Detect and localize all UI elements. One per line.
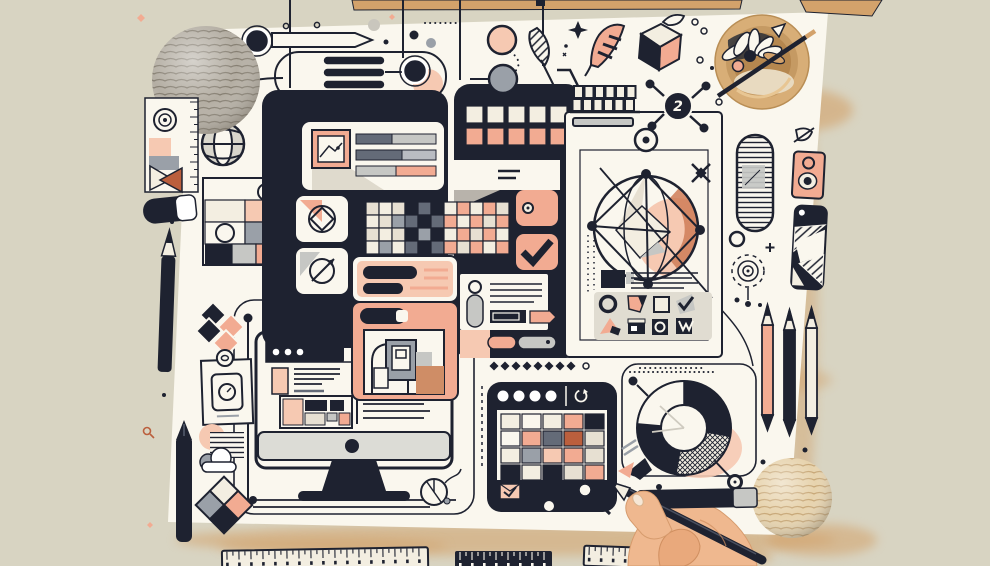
monitor-base xyxy=(298,491,410,501)
swatch-cell xyxy=(457,228,470,241)
swatch-cell xyxy=(392,202,405,215)
dark-node xyxy=(403,59,427,83)
frame-dot xyxy=(544,501,554,511)
compass-tile xyxy=(296,248,348,294)
pencil-left xyxy=(157,230,176,372)
swatch-cell xyxy=(431,215,444,228)
grey-dot xyxy=(368,19,380,31)
clipboard-tag xyxy=(201,349,254,425)
monitor-logo-dot xyxy=(345,439,359,453)
swatch-cell xyxy=(418,215,431,228)
swatch-cell xyxy=(483,241,496,254)
swatch-cell xyxy=(585,431,604,446)
swatch-cell xyxy=(501,414,520,429)
thumbnail-block xyxy=(272,368,288,394)
pencil-trio xyxy=(762,305,817,435)
swatch-cell xyxy=(457,241,470,254)
image-placeholder-icon xyxy=(312,130,350,168)
cart-basket-grid xyxy=(573,86,636,111)
swatch-cell xyxy=(543,414,562,429)
dark-pattern-card xyxy=(790,204,828,291)
mini-ruler-card xyxy=(145,98,198,192)
swatch-cell xyxy=(444,228,457,241)
swatch-cell xyxy=(543,465,562,480)
window-dot-icon xyxy=(273,349,280,356)
swatch-cell xyxy=(457,202,470,215)
swatch-cell xyxy=(418,228,431,241)
swatch-strip-grid xyxy=(366,202,509,254)
window-dot-icon xyxy=(285,349,292,356)
swatch-cell xyxy=(487,128,504,145)
pill-button xyxy=(518,336,556,349)
swatch-cell xyxy=(585,448,604,463)
peach-ring-circle xyxy=(488,26,516,54)
swatch-cell xyxy=(466,106,483,123)
pencil-white xyxy=(806,308,817,433)
design-tool-tile xyxy=(296,196,348,242)
swatch-cell xyxy=(585,465,604,480)
swatch-cell xyxy=(483,215,496,228)
swatch-cell xyxy=(522,414,541,429)
swatch-cell xyxy=(392,228,405,241)
swatch-cell xyxy=(470,202,483,215)
input-field xyxy=(490,310,526,323)
swatch-cell xyxy=(529,106,546,123)
monitor-stand xyxy=(322,460,386,491)
eraser xyxy=(142,194,197,224)
profile-card xyxy=(460,274,556,330)
swatch-cell xyxy=(418,202,431,215)
swatch-cell xyxy=(564,431,583,446)
pencil-peach xyxy=(762,305,773,430)
swatch-cell xyxy=(457,215,470,228)
swatch-cell xyxy=(405,241,418,254)
arch-document-card xyxy=(364,330,444,394)
swatch-cell xyxy=(543,448,562,463)
window-dot-icon xyxy=(514,391,525,402)
sketch-card xyxy=(565,112,722,368)
swatch-cell xyxy=(470,228,483,241)
swatch-cell xyxy=(418,241,431,254)
swatch-cell xyxy=(543,431,562,446)
pen-left xyxy=(176,420,192,542)
window-dot-icon xyxy=(530,391,541,402)
swatch-cell xyxy=(522,431,541,446)
ruler-white-long xyxy=(222,547,428,566)
peach-subpanel xyxy=(352,256,458,400)
pencil-dark xyxy=(784,310,795,435)
swatch-cell xyxy=(444,241,457,254)
ruler-dark xyxy=(455,551,552,566)
hatched-capsule xyxy=(737,135,773,231)
illustration-canvas: 2 xyxy=(0,0,990,566)
swatch-cell xyxy=(431,228,444,241)
swatch-cell xyxy=(496,215,509,228)
swatch-cell xyxy=(405,228,418,241)
swatch-cell xyxy=(496,228,509,241)
person-icon xyxy=(469,281,481,293)
menu-pill xyxy=(363,266,417,279)
swatch-cell xyxy=(470,215,483,228)
swatch-cell xyxy=(483,228,496,241)
swatch-cell xyxy=(444,202,457,215)
swatch-cell xyxy=(564,465,583,480)
swatch-cell xyxy=(444,215,457,228)
swatch-cell xyxy=(585,414,604,429)
peach-tag xyxy=(792,151,825,199)
swatch-cell xyxy=(379,228,392,241)
lens-icon xyxy=(652,319,668,335)
swatch-cell xyxy=(501,465,520,480)
illustration-stage: 2 xyxy=(0,0,990,566)
swatch-cell xyxy=(564,414,583,429)
swatch-cell xyxy=(496,241,509,254)
tiny-magnifier-icon xyxy=(144,428,155,439)
swatch-cell xyxy=(508,128,525,145)
swatch-cell xyxy=(522,465,541,480)
grey-ring-circle xyxy=(489,65,517,93)
menu-pill xyxy=(363,283,403,294)
swatch-cell xyxy=(405,215,418,228)
swatch-cell xyxy=(496,202,509,215)
pencil-button xyxy=(530,311,556,323)
swatch-cell xyxy=(366,215,379,228)
swatch-cell xyxy=(431,241,444,254)
swatch-cell xyxy=(470,241,483,254)
window-dot-icon xyxy=(498,391,509,402)
swatch-cell xyxy=(466,128,483,145)
swatch-cell xyxy=(366,228,379,241)
swatch-cell xyxy=(405,202,418,215)
swatch-cell xyxy=(564,448,583,463)
donut-chart xyxy=(637,381,731,475)
swatch-cell xyxy=(366,202,379,215)
pill-button xyxy=(488,336,516,349)
yarn-ball-beige xyxy=(752,458,832,538)
swatch-cell xyxy=(379,202,392,215)
swatch-cell xyxy=(379,215,392,228)
swatch-cell xyxy=(487,106,504,123)
window-dot-icon xyxy=(546,391,557,402)
swatch-cell xyxy=(501,448,520,463)
swatch-cell xyxy=(483,202,496,215)
square-icon xyxy=(654,297,669,312)
wireframe-mosaic xyxy=(280,396,352,428)
white-band xyxy=(454,160,560,190)
swatch-cell xyxy=(522,448,541,463)
swatch-cell xyxy=(379,241,392,254)
color-palette-panel xyxy=(487,361,617,514)
hub-count-label: 2 xyxy=(673,99,683,115)
progress-bars xyxy=(356,134,436,176)
swatch-cell xyxy=(529,128,546,145)
envelope-icon xyxy=(500,484,520,499)
swatch-cell xyxy=(431,202,444,215)
swatch-cell xyxy=(392,241,405,254)
swatch-cell xyxy=(366,241,379,254)
swatch-cell xyxy=(508,106,525,123)
swatch-cell xyxy=(501,431,520,446)
arrow-outline-icon xyxy=(272,33,372,47)
swatch-cell xyxy=(392,215,405,228)
window-dot-icon xyxy=(297,349,304,356)
hamburger-menu-icon xyxy=(323,56,385,89)
